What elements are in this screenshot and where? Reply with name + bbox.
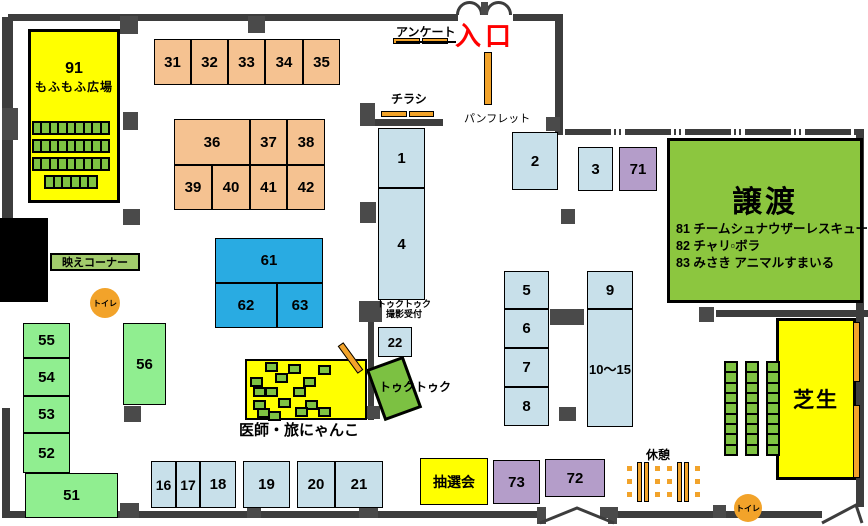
seat — [51, 123, 57, 133]
rest-chair — [627, 492, 632, 497]
seat — [72, 177, 79, 187]
pillar — [248, 16, 265, 33]
vet-seat — [303, 377, 316, 387]
vet-seat — [275, 373, 288, 383]
pillar — [561, 209, 575, 224]
tuktuk-reception-line2: 撮影受付 — [372, 309, 436, 319]
booth-3: 3 — [578, 147, 613, 191]
pamphlet-label: パンフレット — [464, 110, 530, 126]
seat — [93, 159, 99, 169]
seat — [89, 177, 96, 187]
rest-chair — [695, 466, 700, 471]
pillar — [360, 103, 375, 126]
pillar — [2, 108, 18, 140]
booth-5: 5 — [504, 271, 549, 309]
booth-34: 34 — [265, 39, 303, 85]
vet-seat — [288, 364, 301, 374]
rest-chair — [695, 479, 700, 484]
rest-chair — [627, 466, 632, 471]
rest-table — [644, 462, 649, 502]
seat — [76, 123, 82, 133]
seat — [85, 123, 91, 133]
seat-strip — [32, 121, 110, 135]
rest-chair — [667, 479, 672, 484]
seat — [34, 141, 40, 151]
stage-block — [0, 218, 48, 302]
booth-18: 18 — [200, 461, 236, 508]
seat — [747, 373, 757, 381]
booth-19: 19 — [243, 461, 290, 508]
booth-32: 32 — [191, 39, 228, 85]
rest-chair — [655, 466, 660, 471]
booth-72: 72 — [545, 459, 605, 497]
wall-segment — [716, 310, 868, 317]
seat — [726, 384, 736, 392]
pillar — [124, 406, 141, 422]
tuktuk-label: トゥクトゥク — [379, 378, 451, 395]
seat — [59, 159, 65, 169]
seat — [768, 404, 778, 412]
seat — [747, 425, 757, 433]
area-lawn: 芝生 — [776, 318, 856, 480]
table-bar — [484, 52, 492, 105]
booth-22: 22 — [378, 327, 412, 357]
seat — [747, 435, 757, 443]
seat-strip — [745, 361, 759, 456]
pillar — [481, 2, 488, 15]
booth-37: 37 — [250, 119, 287, 165]
vet-seat — [293, 387, 306, 397]
table-bar — [853, 322, 860, 382]
seat — [51, 159, 57, 169]
booth-51: 51 — [25, 473, 118, 518]
seat — [42, 159, 48, 169]
booth-21: 21 — [335, 461, 383, 508]
seat — [768, 415, 778, 423]
seat — [726, 404, 736, 412]
seat — [726, 425, 736, 433]
vet-seat — [265, 387, 278, 397]
photo-corner-label: 映えコーナー — [62, 254, 128, 270]
rest-chair — [627, 479, 632, 484]
seat — [747, 363, 757, 371]
seat — [76, 141, 82, 151]
seat-strip — [766, 361, 780, 456]
booth-7: 7 — [504, 348, 549, 387]
entrance-label: 入口 — [455, 16, 515, 53]
seat — [768, 425, 778, 433]
vet-seat — [318, 365, 331, 375]
booth-52: 52 — [23, 433, 70, 473]
wall-segment — [372, 119, 443, 126]
seat — [68, 141, 74, 151]
pillar — [120, 503, 139, 518]
seat — [68, 123, 74, 133]
vet-seat — [250, 377, 263, 387]
photo-corner: 映えコーナー — [50, 253, 140, 271]
adoption-title: 譲渡 — [670, 177, 860, 221]
pillar — [713, 505, 726, 518]
table-bar — [853, 405, 860, 478]
rest-chair — [667, 492, 672, 497]
seat — [747, 446, 757, 454]
booth-16: 16 — [151, 461, 176, 508]
toilet-marker: トイレ — [90, 288, 120, 318]
seat — [768, 384, 778, 392]
seat — [768, 394, 778, 402]
booth-53: 53 — [23, 396, 70, 433]
seat — [93, 123, 99, 133]
adoption-line-2: 82 チャリ▫ボラ — [670, 238, 860, 255]
seat — [51, 141, 57, 151]
seat — [34, 123, 40, 133]
booth-17: 17 — [176, 461, 200, 508]
seat — [747, 415, 757, 423]
booth-1: 1 — [378, 128, 425, 188]
lawn-label: 芝生 — [793, 384, 839, 414]
seat — [68, 159, 74, 169]
seat — [726, 394, 736, 402]
booth-8: 8 — [504, 387, 549, 426]
booth-55: 55 — [23, 323, 70, 358]
seat — [63, 177, 70, 187]
seat — [55, 177, 62, 187]
seat — [747, 384, 757, 392]
seat — [59, 141, 65, 151]
booth-38: 38 — [287, 119, 325, 165]
rest-chair — [667, 466, 672, 471]
vet-seat — [318, 407, 331, 417]
booth-54: 54 — [23, 358, 70, 396]
flyer-label: チラシ — [391, 90, 427, 107]
adoption-line-3: 83 みさき アニマルすまいる — [670, 255, 860, 272]
pillar — [546, 117, 560, 131]
seat — [102, 159, 108, 169]
booth-31: 31 — [154, 39, 191, 85]
pillar — [608, 507, 617, 524]
seat — [102, 123, 108, 133]
booth-62: 62 — [215, 283, 277, 328]
seat — [768, 435, 778, 443]
rest-area-label: 休憩 — [646, 446, 670, 463]
seat — [42, 123, 48, 133]
rest-chair — [655, 492, 660, 497]
booth-73: 73 — [493, 460, 540, 504]
entrance-door-arc-left — [456, 1, 483, 15]
seat — [102, 141, 108, 151]
seat — [768, 363, 778, 371]
rest-chair — [695, 492, 700, 497]
rest-table — [677, 462, 682, 502]
seat-strip — [44, 175, 98, 189]
seat — [726, 363, 736, 371]
area-adoption: 譲渡 81 チームシュナウザーレスキュー 82 チャリ▫ボラ 83 みさき アニ… — [667, 138, 863, 303]
tuktuk-reception-label: トゥクトゥク 撮影受付 — [372, 299, 436, 319]
seat — [42, 141, 48, 151]
booth-10-15: 10～15 — [587, 309, 633, 427]
booth-63: 63 — [277, 283, 323, 328]
toilet-marker: トイレ — [734, 494, 762, 522]
booth-71: 71 — [619, 147, 657, 191]
area-mofumofu-number: 91 — [31, 60, 117, 78]
rest-table — [637, 462, 642, 502]
booth-9: 9 — [587, 271, 633, 309]
pillar — [559, 407, 576, 421]
lottery-booth: 抽選会 — [420, 458, 488, 505]
rest-table — [684, 462, 689, 502]
seat — [747, 394, 757, 402]
seat — [726, 446, 736, 454]
wall-segment — [8, 14, 458, 21]
tuktuk-reception-line1: トゥクトゥク — [372, 299, 436, 309]
seat — [34, 159, 40, 169]
lottery-label: 抽選会 — [433, 472, 475, 492]
booth-35: 35 — [303, 39, 340, 85]
seat-strip — [32, 139, 110, 153]
seat — [85, 159, 91, 169]
wall-segment — [2, 408, 10, 518]
seat — [93, 141, 99, 151]
table-bar — [409, 111, 434, 117]
booth-6: 6 — [504, 309, 549, 348]
seat — [726, 435, 736, 443]
seat — [81, 177, 88, 187]
booth-56: 56 — [123, 323, 166, 405]
survey-label: アンケート — [396, 23, 456, 43]
seat-strip — [724, 361, 738, 456]
pillar — [699, 307, 714, 322]
booth-2: 2 — [512, 132, 558, 190]
vet-seat — [295, 407, 308, 417]
booth-4: 4 — [378, 188, 425, 300]
vet-area-label: 医師・旅にゃんこ — [239, 419, 359, 440]
pillar — [123, 209, 140, 225]
adoption-line-1: 81 チームシュナウザーレスキュー — [670, 221, 860, 238]
seat — [46, 177, 53, 187]
entrance-door-arc-right — [485, 1, 512, 15]
seat — [85, 141, 91, 151]
booth-20: 20 — [297, 461, 335, 508]
booth-41: 41 — [250, 165, 287, 210]
table-bar — [381, 111, 407, 117]
booth-61: 61 — [215, 238, 323, 283]
seat — [59, 123, 65, 133]
seat-strip — [32, 157, 110, 171]
pillar — [550, 309, 584, 325]
seat — [726, 373, 736, 381]
pillar — [360, 202, 376, 223]
wall-segment — [565, 129, 856, 135]
area-mofumofu-label: もふもふ広場 — [31, 78, 117, 95]
seat — [768, 373, 778, 381]
rest-chair — [655, 479, 660, 484]
booth-33: 33 — [228, 39, 265, 85]
booth-36: 36 — [174, 119, 250, 165]
seat — [76, 159, 82, 169]
pillar — [537, 507, 546, 524]
seat — [726, 415, 736, 423]
vet-seat — [265, 362, 278, 372]
booth-39: 39 — [174, 165, 212, 210]
pillar — [120, 16, 138, 34]
event-floor-map: 91 もふもふ広場 譲渡 81 チームシュナウザーレスキュー 82 チャリ▫ボラ… — [0, 0, 868, 526]
seat — [768, 446, 778, 454]
booth-42: 42 — [287, 165, 325, 210]
pillar — [123, 112, 138, 130]
vet-seat — [278, 398, 291, 408]
seat — [747, 404, 757, 412]
booth-40: 40 — [212, 165, 250, 210]
